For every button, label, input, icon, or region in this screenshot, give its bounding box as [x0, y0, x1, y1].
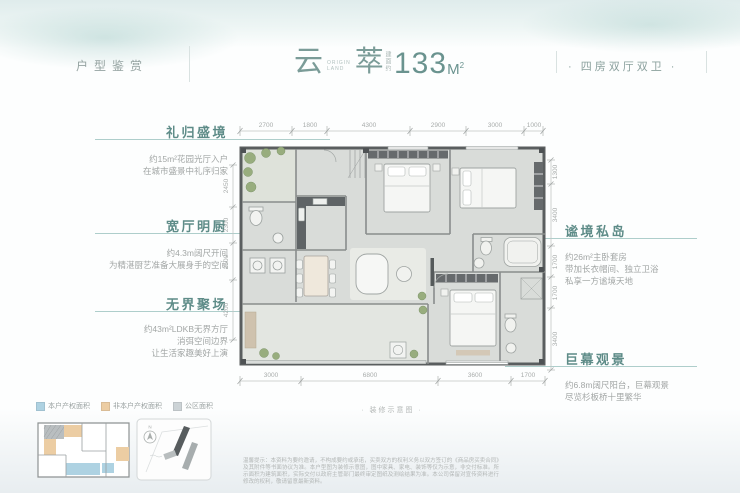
- area-legend: 本户产权面积 非本户产权面积 公区面积: [36, 401, 213, 411]
- callout-living: 无界聚场 约43m²LDKB无界方厅 消弭空间边界 让生活家趣美好上演: [58, 294, 228, 359]
- dimension-label: 1000: [527, 122, 542, 129]
- legend-item: 公区面积: [173, 401, 213, 411]
- dimension-label: 1700: [552, 285, 559, 300]
- plan-title: 云 ORIGIN LAND 萃: [294, 45, 384, 79]
- dining-table: [297, 256, 336, 297]
- sofa: [356, 254, 388, 294]
- header-divider-right-1: [556, 51, 557, 73]
- dimension-label: 1700: [552, 254, 559, 269]
- dimension-label: 2700: [259, 122, 274, 129]
- dimension-label: 2900: [431, 122, 446, 129]
- watercolor-blob-right: [520, 0, 740, 54]
- legend-swatch-gray: [173, 402, 182, 411]
- floorplan-page: 户型鉴赏 云 ORIGIN LAND 萃 建面约 133 M2 · 四房双厅双卫…: [0, 0, 740, 493]
- title-char-1: 云: [294, 45, 323, 79]
- bathroom-fixtures: [474, 238, 541, 269]
- coffee-table: [397, 267, 412, 282]
- area-figure: 建面约 133 M2: [383, 47, 464, 80]
- layout-label: · 四房双厅双卫 ·: [568, 58, 677, 74]
- callout-kitchen: 宽厅明厨 约4.3m阔尺开间 为精湛厨艺准备大展身手的空间: [58, 216, 228, 271]
- area-value: 133: [394, 47, 447, 80]
- callout-balcony-view: 巨幕观景 约6.8m阔尺阳台，巨幕观景 尽览杉板桥十里繁华: [565, 349, 725, 403]
- area-prefix: 建面约: [383, 51, 392, 72]
- living-area: [350, 248, 434, 300]
- dimension-label: 3400: [552, 207, 559, 222]
- disclaimer: 温馨提示：本资料为要约邀请，不构成要约或承诺，买卖双方的权利义务以双方签订的《商…: [243, 458, 499, 486]
- dimension-label: 3400: [552, 331, 559, 346]
- dimension-label: 1300: [552, 164, 559, 179]
- legend-swatch-blue: [36, 402, 45, 411]
- title-subtext: ORIGIN LAND: [327, 60, 351, 72]
- header-divider: [189, 46, 190, 82]
- title-char-2: 萃: [355, 45, 384, 79]
- plant-icon: [418, 292, 426, 300]
- tv-icon: [431, 258, 435, 286]
- legend-item: 本户产权面积: [36, 401, 90, 411]
- area-unit: M2: [447, 56, 464, 80]
- floor-plan: [238, 138, 547, 378]
- section-label: 户型鉴赏: [76, 57, 148, 74]
- dimension-label: 3000: [488, 122, 503, 129]
- area-diagram-thumbnail: [36, 417, 131, 483]
- legend-item: 非本户产权面积: [101, 401, 162, 411]
- dimension-label: 2450: [223, 178, 230, 193]
- dimension-label: 4300: [362, 122, 377, 129]
- svg-text:N: N: [148, 425, 151, 430]
- bed-bench: [456, 350, 490, 356]
- dimension-label: 1800: [303, 122, 318, 129]
- callout-master-suite: 谧境私岛 约26m²主卧套房 带加长衣帽间、独立卫浴 私享一方谧境天地: [565, 221, 725, 287]
- plan-note: · 装修示意图 ·: [302, 405, 482, 415]
- callout-entry-garden: 礼归盛境 约15m²花园光厅入户 在城市盛景中礼序归家: [58, 122, 228, 177]
- balcony-bench: [245, 312, 256, 348]
- header-divider-right-2: [706, 51, 707, 73]
- site-plan-thumbnail: N: [136, 418, 212, 481]
- legend-swatch-orange: [101, 402, 110, 411]
